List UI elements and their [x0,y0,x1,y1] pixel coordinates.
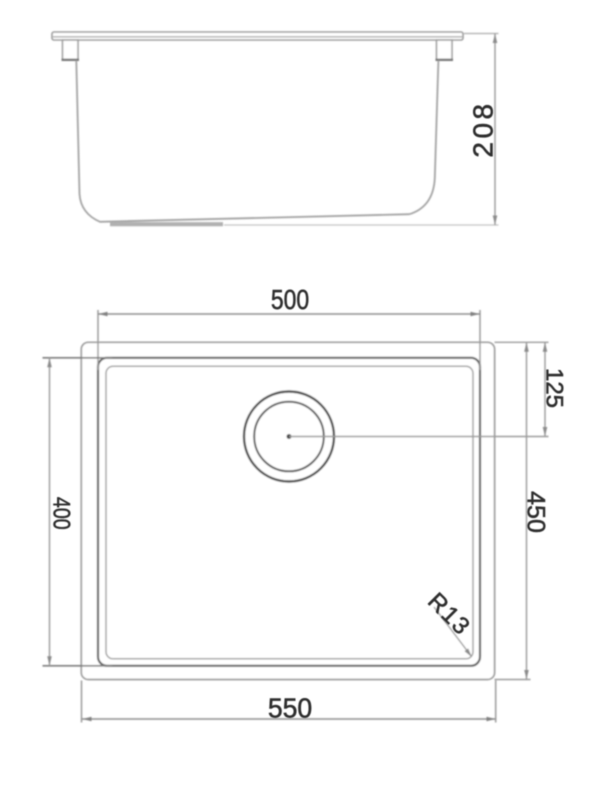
svg-text:450: 450 [522,491,550,533]
svg-text:550: 550 [268,692,312,724]
svg-text:500: 500 [271,285,309,316]
svg-text:208: 208 [468,100,499,157]
svg-text:400: 400 [48,497,75,530]
svg-text:125: 125 [541,368,568,408]
